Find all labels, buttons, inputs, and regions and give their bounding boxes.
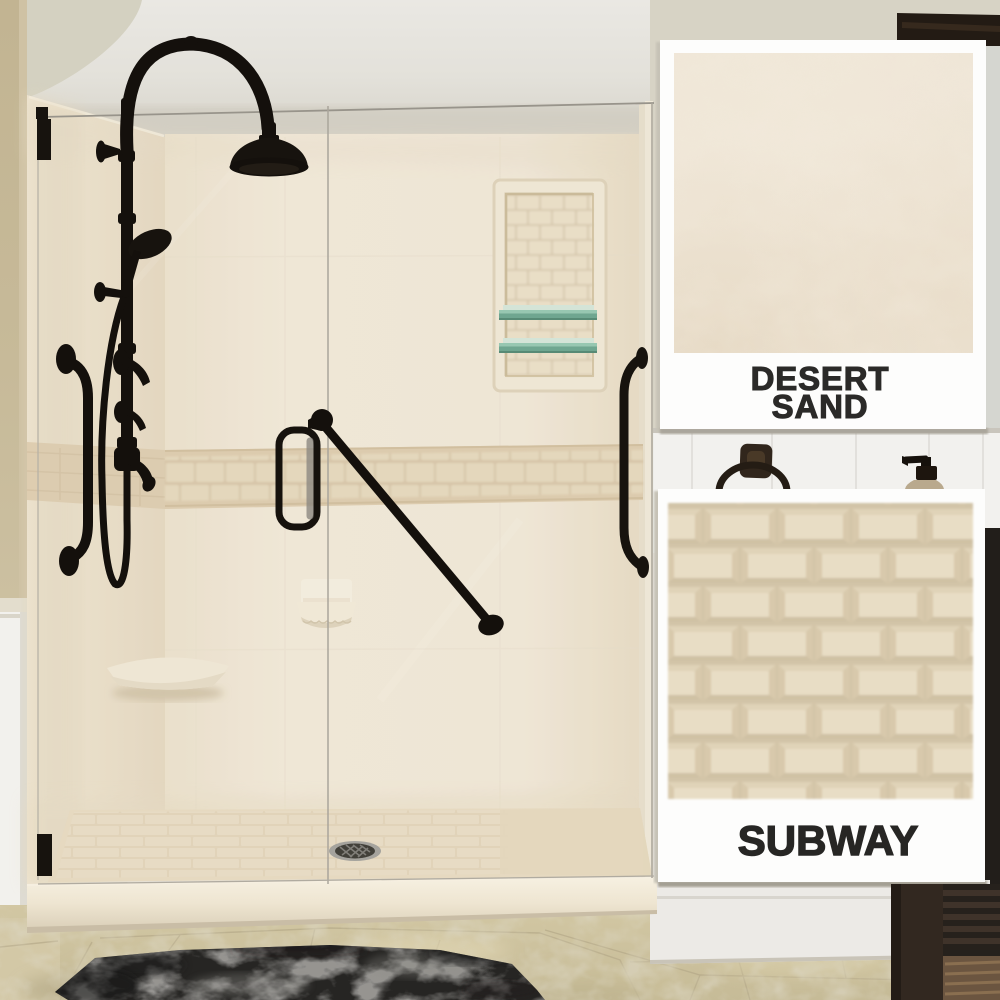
svg-text:SAND: SAND	[772, 388, 869, 425]
svg-text:SUBWAY: SUBWAY	[738, 817, 919, 864]
